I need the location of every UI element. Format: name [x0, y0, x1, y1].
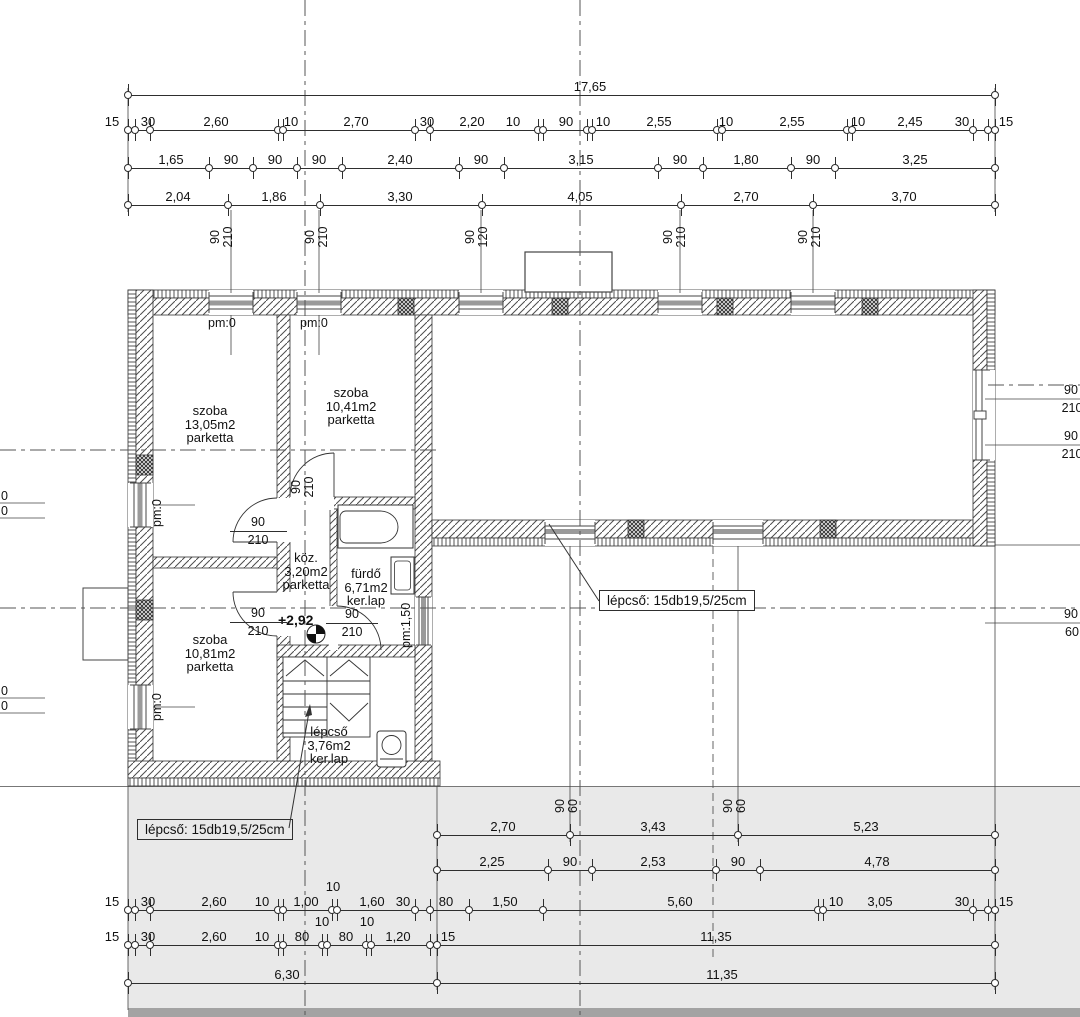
- bathtub: [338, 505, 413, 548]
- right-wall-opening: [973, 370, 995, 460]
- toilet: [377, 731, 406, 767]
- floor-plan-page: szoba 13,05m2 parketta szoba 10,41m2 par…: [0, 0, 1080, 1017]
- chimney-outline: [525, 252, 612, 292]
- floor-plan-drawing: [0, 0, 1080, 1017]
- staircase: [283, 657, 370, 737]
- doors: [233, 453, 381, 650]
- terrace-zone: [0, 787, 1080, 1017]
- level-marker: [307, 625, 325, 643]
- bay-outline: [83, 588, 128, 660]
- piers: [136, 298, 878, 620]
- bath-window: [415, 597, 432, 645]
- washbasin: [391, 557, 414, 594]
